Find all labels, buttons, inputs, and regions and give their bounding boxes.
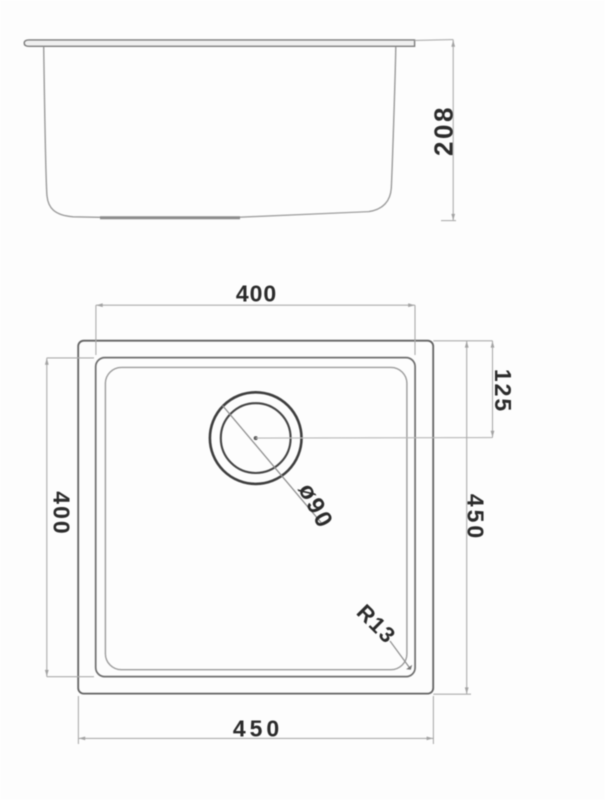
svg-text:125: 125	[490, 369, 516, 413]
svg-text:450: 450	[233, 716, 283, 742]
svg-text:400: 400	[49, 491, 75, 535]
svg-text:450: 450	[463, 494, 489, 541]
svg-text:400: 400	[236, 281, 277, 307]
svg-text:208: 208	[429, 105, 459, 156]
